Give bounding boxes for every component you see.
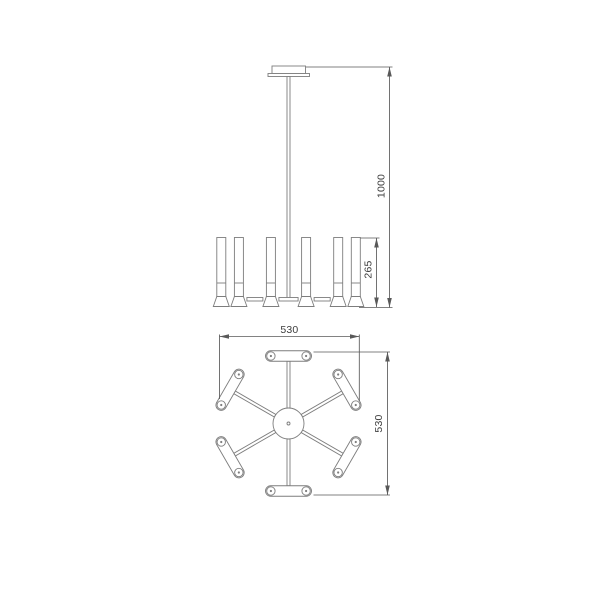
candle-socket bbox=[217, 401, 225, 409]
radial-arm bbox=[234, 391, 276, 417]
candle-tube bbox=[231, 238, 247, 307]
candle-socket bbox=[235, 370, 243, 378]
candle-holder-cone bbox=[348, 297, 364, 307]
candle-tube bbox=[263, 238, 279, 307]
radial-arm bbox=[301, 430, 343, 456]
dimension-label-body-height: 265 bbox=[362, 260, 374, 278]
candle-tube bbox=[213, 238, 229, 307]
candle-socket bbox=[334, 468, 342, 476]
dimension-label-overall-drop: 1000 bbox=[376, 174, 388, 198]
candle-holder-cone bbox=[263, 297, 279, 307]
candle-tube bbox=[298, 238, 314, 307]
central-hub bbox=[273, 408, 304, 439]
candle-holder-cone bbox=[330, 297, 346, 307]
candle-socket bbox=[334, 370, 342, 378]
candle-tube bbox=[330, 238, 346, 307]
ceiling-canopy bbox=[272, 66, 306, 74]
drawing-page: 1000 265 bbox=[0, 0, 600, 600]
drawing-svg: 1000 265 bbox=[0, 0, 600, 600]
radial-arm bbox=[287, 361, 290, 408]
dimension-depth: 530 bbox=[314, 352, 391, 495]
candle-socket bbox=[235, 468, 243, 476]
radial-arm bbox=[234, 430, 276, 456]
stem-rod bbox=[287, 77, 290, 299]
candle-holder-cone bbox=[213, 297, 229, 307]
candle-socket bbox=[302, 487, 310, 495]
candle-socket bbox=[267, 352, 275, 360]
candle-holder-cone bbox=[298, 297, 314, 307]
candle-holder-cone bbox=[231, 297, 247, 307]
dimension-overall-drop: 1000 bbox=[306, 67, 393, 308]
candle-socket bbox=[352, 438, 360, 446]
arm-bar bbox=[247, 298, 263, 302]
plan-view: 530 530 bbox=[214, 324, 390, 496]
dimension-label-width: 530 bbox=[280, 324, 298, 336]
dimension-body-height: 265 bbox=[360, 238, 379, 307]
candle-socket bbox=[267, 487, 275, 495]
elevation-view: 1000 265 bbox=[213, 66, 392, 308]
radial-arm bbox=[301, 391, 343, 417]
arm-bar bbox=[314, 298, 330, 302]
arm-bar bbox=[279, 298, 298, 302]
candle-socket bbox=[217, 438, 225, 446]
candle-socket bbox=[302, 352, 310, 360]
radial-arm bbox=[287, 439, 290, 486]
candle-socket bbox=[352, 401, 360, 409]
dimension-label-depth: 530 bbox=[373, 414, 385, 432]
